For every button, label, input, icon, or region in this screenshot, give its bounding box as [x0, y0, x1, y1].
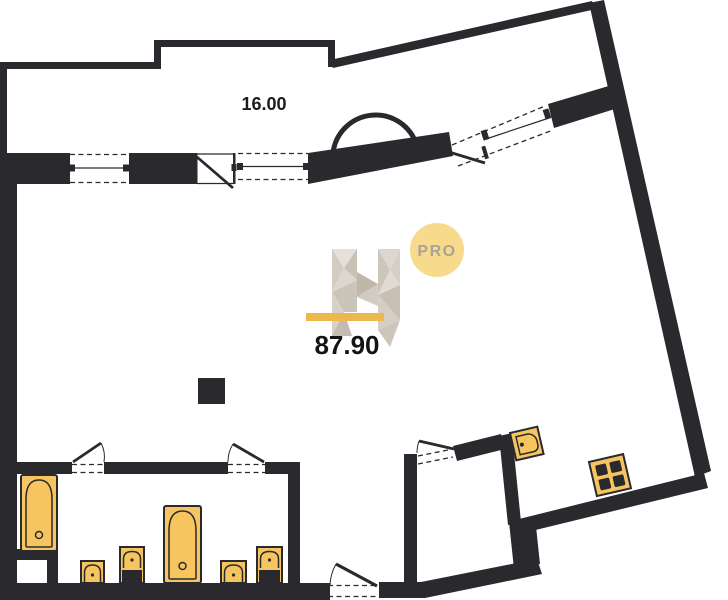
wc-wall-top	[453, 434, 505, 461]
logo-underline-bar	[306, 313, 384, 321]
wc-wall-left	[404, 454, 417, 583]
pedestal-sink-icon	[257, 547, 282, 583]
bathroom-wall-a	[17, 462, 72, 474]
bathroom-wall-b	[104, 462, 228, 474]
wc-door	[417, 441, 454, 464]
column	[198, 378, 225, 404]
outer-wall-right	[589, 0, 711, 477]
entrance-door	[328, 564, 379, 597]
bathroom-door-1	[72, 443, 104, 473]
bathtub-icon	[21, 475, 57, 551]
balcony-wall-step-top	[154, 40, 335, 47]
top-wall-pier	[548, 85, 618, 128]
watermark-logo: 87.90 PRO	[306, 223, 464, 360]
pro-badge-label: PRO	[417, 243, 456, 260]
bathtub-icon	[164, 506, 201, 583]
outer-wall-left-thin	[0, 62, 7, 157]
toilet-icon	[221, 561, 246, 583]
balcony-area-label: 16.00	[241, 94, 286, 114]
pedestal-sink-icon	[120, 547, 144, 583]
pro-badge: PRO	[410, 223, 464, 277]
balcony-wall-top-left	[0, 62, 161, 69]
total-area-label: 87.90	[314, 330, 379, 360]
bathroom-wall-right	[288, 462, 300, 600]
outer-wall-left	[0, 153, 17, 600]
doors	[72, 115, 489, 596]
balcony-wall-slanted	[330, 1, 596, 68]
window-2	[237, 154, 309, 180]
stove-icon	[589, 454, 631, 496]
window-1	[69, 155, 129, 183]
terrace-door	[449, 146, 489, 163]
niche-wall-right	[47, 549, 58, 600]
floor-plan-drawing: 87.90 PRO 16.00	[0, 0, 728, 600]
toilet-icon	[81, 561, 104, 583]
bathroom-door-2	[228, 444, 265, 473]
top-wall-slanted	[308, 132, 453, 184]
balcony-door	[195, 153, 237, 188]
floor-plan-canvas: 87.90 PRO 16.00	[0, 0, 728, 600]
top-wall-segment-a	[0, 153, 70, 184]
kitchen-sink-icon	[510, 427, 544, 461]
top-wall-segment-b	[129, 153, 197, 184]
